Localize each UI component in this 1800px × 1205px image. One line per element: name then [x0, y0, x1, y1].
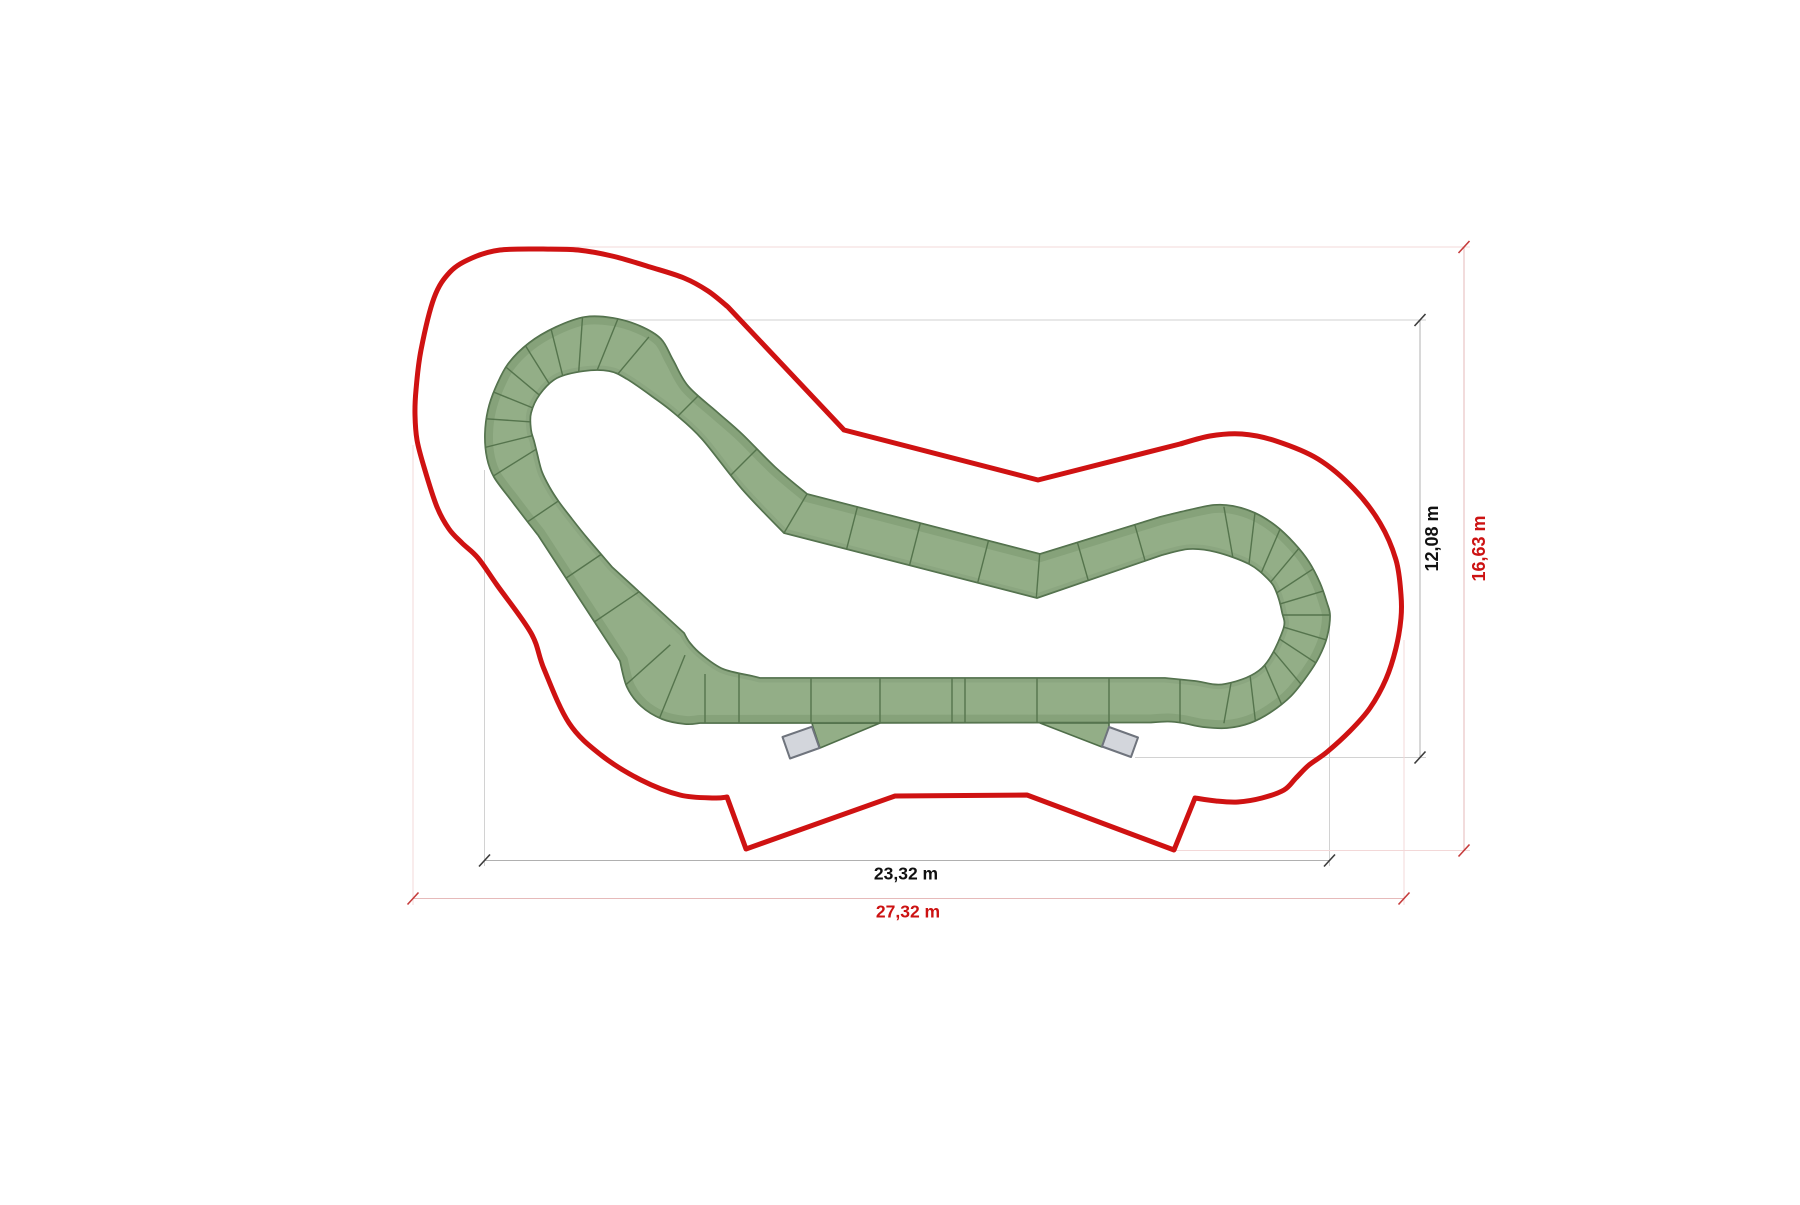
svg-text:27,32 m: 27,32 m	[876, 902, 940, 922]
svg-text:12,08 m: 12,08 m	[1422, 505, 1442, 571]
svg-text:16,63 m: 16,63 m	[1469, 515, 1489, 581]
svg-text:23,32 m: 23,32 m	[874, 864, 938, 884]
